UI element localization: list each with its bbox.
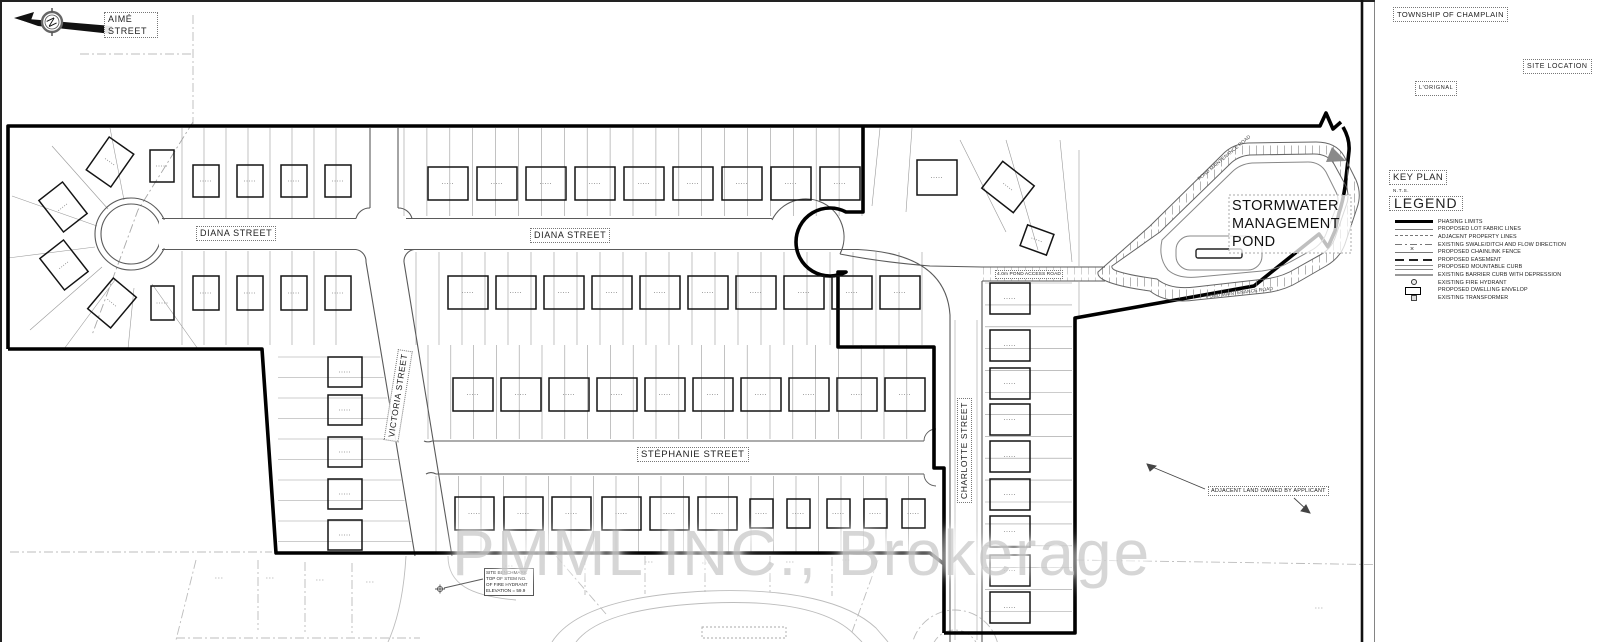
- legend-item-swale: EXISTING SWALE/DITCH AND FLOW DIRECTION: [1395, 241, 1595, 249]
- township-label: TOWNSHIP OF CHAMPLAIN: [1393, 7, 1508, 22]
- easement-symbol: [1395, 256, 1433, 263]
- legend-item-label: PHASING LIMITS: [1438, 219, 1483, 225]
- street-label-stephanie: STÉPHANIE STREET: [637, 447, 749, 462]
- legend-list: PHASING LIMITSPROPOSED LOT FABRIC LINESA…: [1395, 218, 1595, 302]
- fence-symbol: [1395, 249, 1433, 256]
- legend-item-adjacent: ADJACENT PROPERTY LINES: [1395, 233, 1595, 241]
- pond-access-road-label: 4.0m POND ACCESS ROAD: [995, 270, 1063, 279]
- legend-item-label: PROPOSED DWELLING ENVELOP: [1438, 287, 1528, 293]
- legend-item-envelope: PROPOSED DWELLING ENVELOP: [1395, 286, 1595, 294]
- street-label-aime: AIMÉ STREET: [104, 12, 158, 38]
- envelope-symbol: [1395, 287, 1433, 294]
- legend-item-label: PROPOSED LOT FABRIC LINES: [1438, 226, 1521, 232]
- legend-item-transformer: EXISTING TRANSFORMER: [1395, 294, 1595, 302]
- street-label-diana-1: DIANA STREET: [196, 226, 276, 241]
- stormwater-pond-title: STORMWATER MANAGEMENT POND: [1232, 197, 1358, 251]
- legend-item-label: ADJACENT PROPERTY LINES: [1438, 234, 1517, 240]
- legend-item-fence: PROPOSED CHAINLINK FENCE: [1395, 248, 1595, 256]
- lot-fabric-symbol: [1395, 226, 1433, 233]
- adjacent-land-note: ADJACENT LAND OWNED BY APPLICANT: [1208, 486, 1329, 496]
- keyplan-title: KEY PLAN: [1389, 170, 1447, 185]
- side-panel: TOWNSHIP OF CHAMPLAIN SITE LOCATION L'OR…: [1375, 0, 1600, 642]
- legend-item-label: EXISTING SWALE/DITCH AND FLOW DIRECTION: [1438, 242, 1566, 248]
- barrier-curb-symbol: [1395, 271, 1433, 278]
- site-location-label: SITE LOCATION: [1523, 59, 1592, 74]
- hydrant-symbol: [1395, 279, 1433, 286]
- legend-item-mountable-curb: PROPOSED MOUNTABLE CURB: [1395, 264, 1595, 272]
- street-label-diana-2: DIANA STREET: [530, 228, 610, 243]
- phasing-symbol: [1395, 218, 1433, 225]
- brokerage-watermark: PMML INC., Brokerage: [452, 516, 1151, 590]
- street-label-charlotte: CHARLOTTE STREET: [957, 398, 972, 503]
- legend-item-label: PROPOSED EASEMENT: [1438, 257, 1501, 263]
- legend-item-label: EXISTING TRANSFORMER: [1438, 295, 1508, 301]
- legend-item-barrier-curb: EXISTING BARRIER CURB WITH DEPRESSION: [1395, 271, 1595, 279]
- transformer-symbol: [1395, 294, 1433, 301]
- legend-item-lot-fabric: PROPOSED LOT FABRIC LINES: [1395, 226, 1595, 234]
- adjacent-symbol: [1395, 233, 1433, 240]
- legend-item-label: PROPOSED CHAINLINK FENCE: [1438, 249, 1521, 255]
- legend-item-label: EXISTING FIRE HYDRANT: [1438, 280, 1507, 286]
- mountable-curb-symbol: [1395, 264, 1433, 271]
- legend-title: LEGEND: [1389, 196, 1463, 211]
- legend-item-label: EXISTING BARRIER CURB WITH DEPRESSION: [1438, 272, 1561, 278]
- legend-item-easement: PROPOSED EASEMENT: [1395, 256, 1595, 264]
- north-arrow: N: [14, 8, 112, 36]
- lorignal-label: L'ORIGNAL: [1415, 81, 1457, 96]
- legend-item-hydrant: EXISTING FIRE HYDRANT: [1395, 279, 1595, 287]
- site-plan-sheet: N AIMÉ STREET DIANA STREET DIANA STREET …: [0, 0, 1600, 642]
- legend-item-label: PROPOSED MOUNTABLE CURB: [1438, 264, 1522, 270]
- legend-item-phasing: PHASING LIMITS: [1395, 218, 1595, 226]
